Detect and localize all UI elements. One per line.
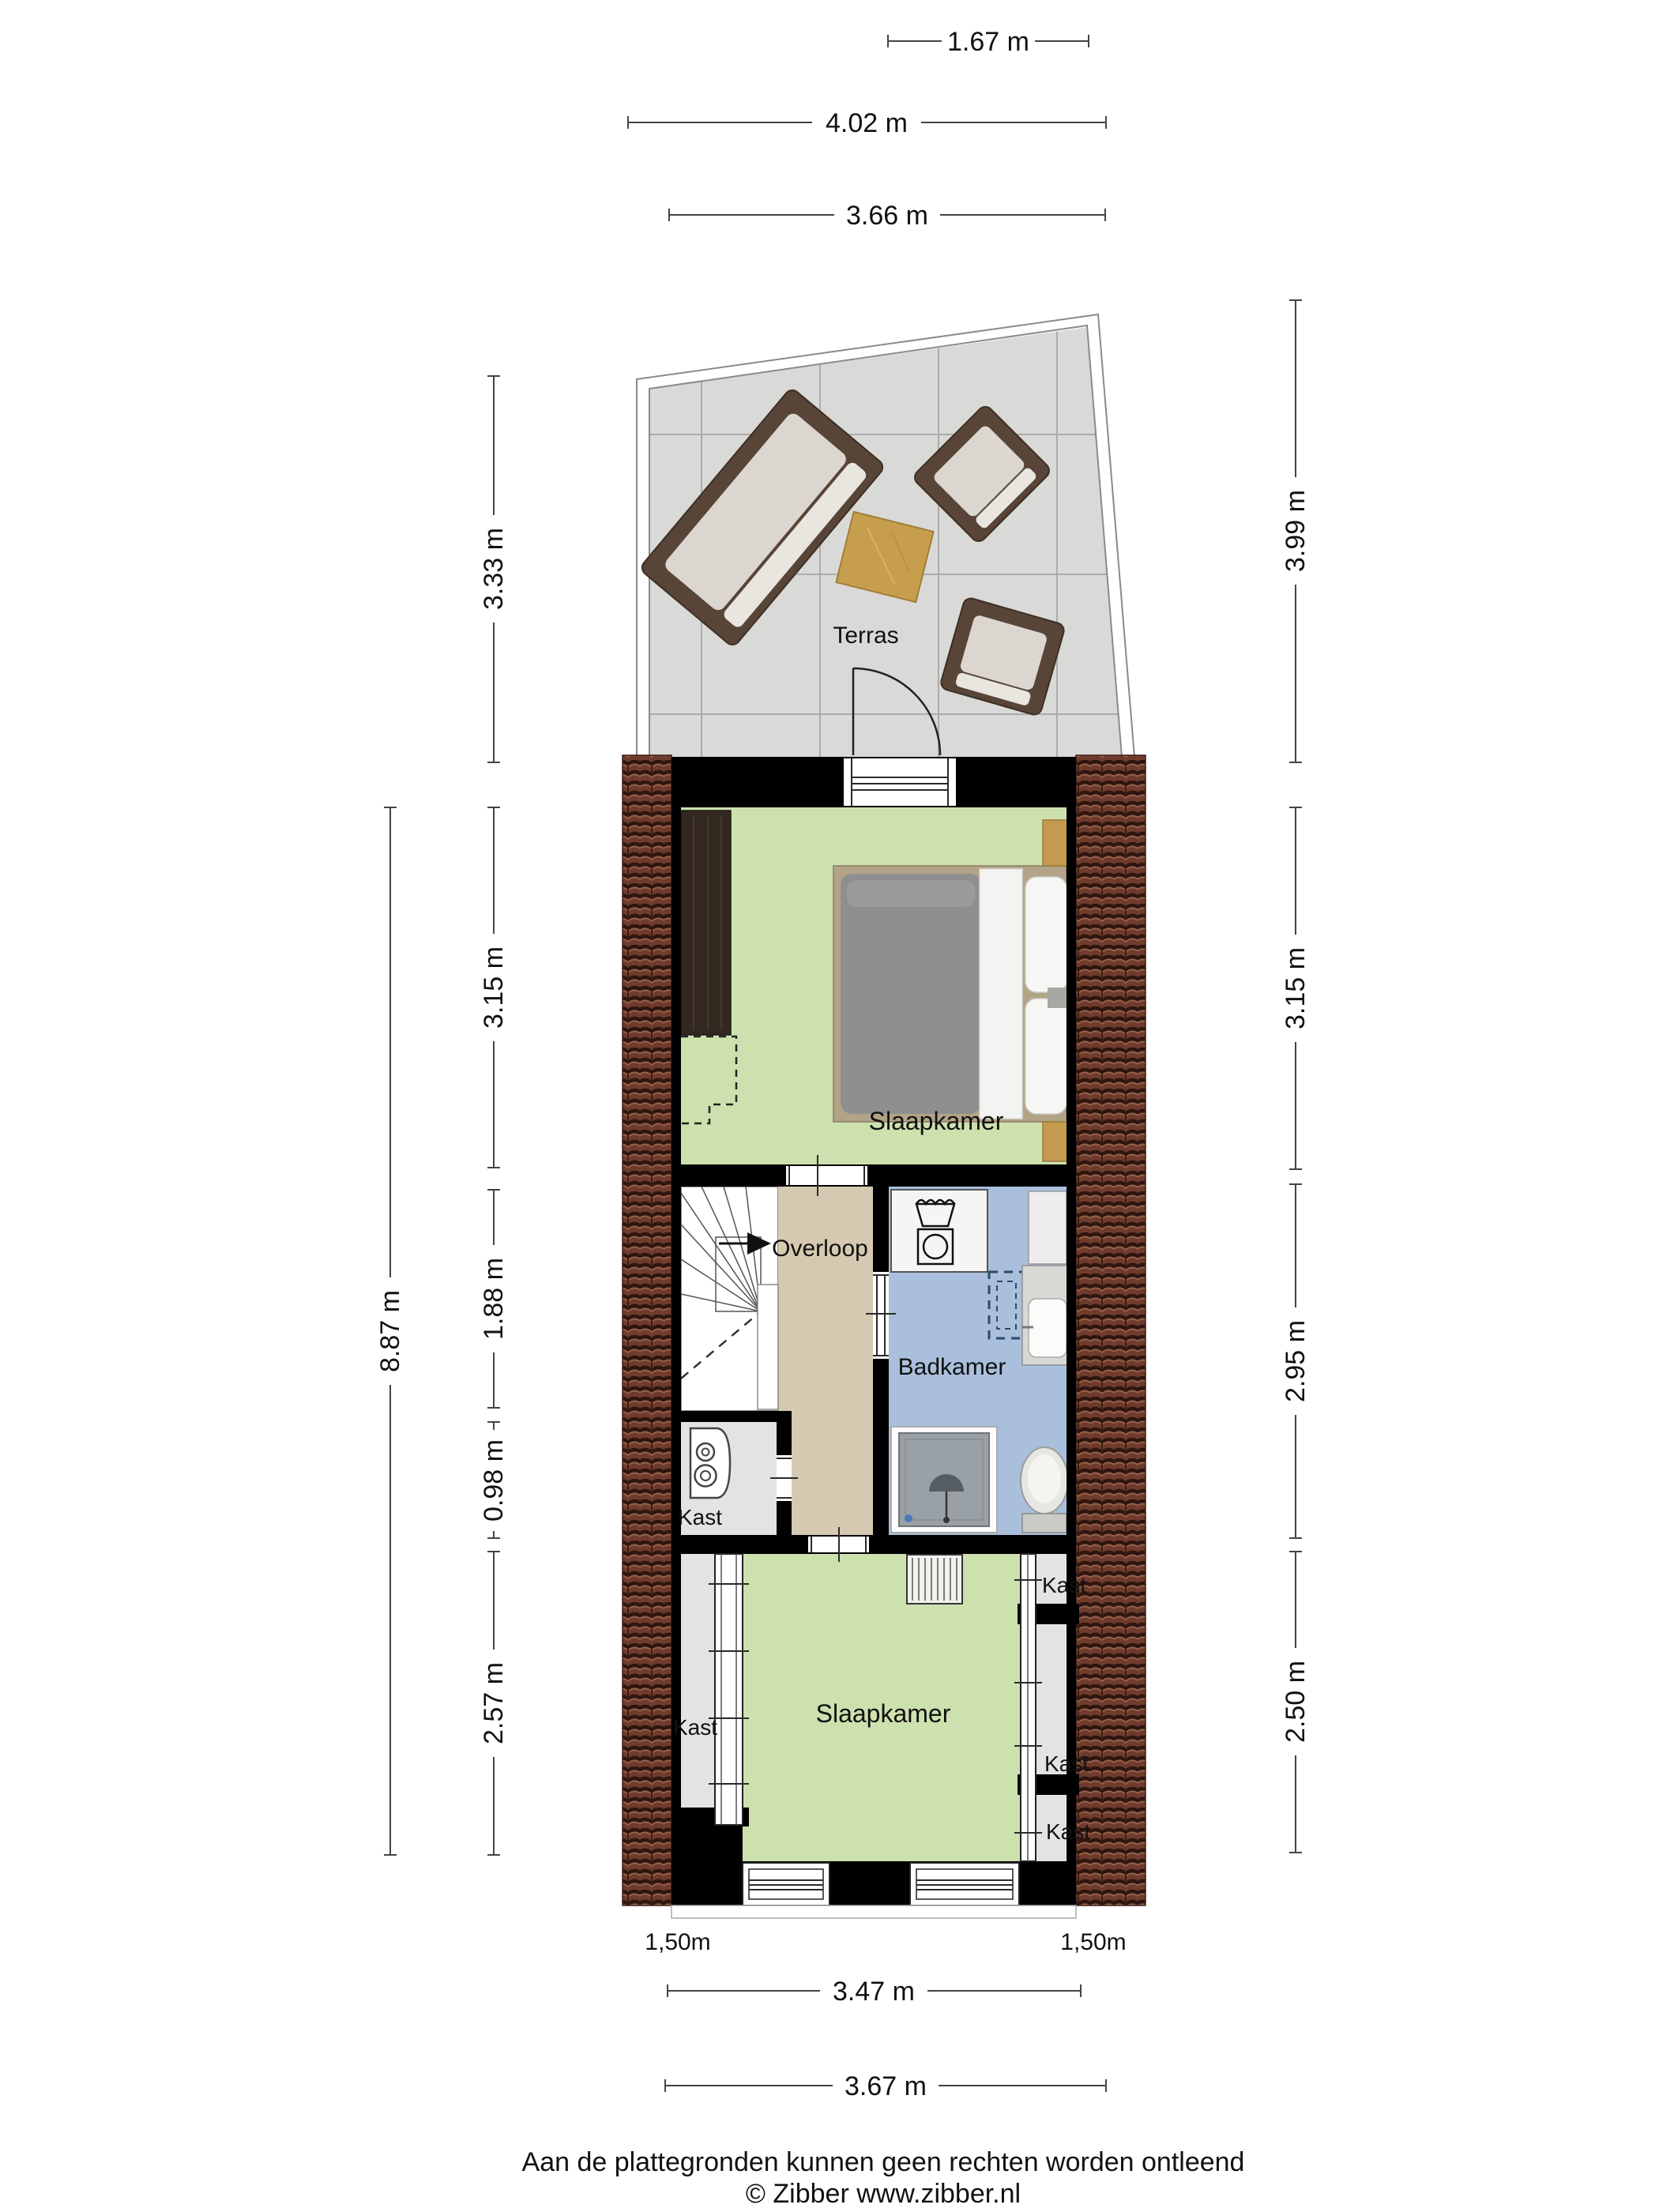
dim-left-257: 2.57 m — [479, 1552, 509, 1855]
dim-left-188: 1.88 m — [479, 1190, 509, 1408]
svg-text:2.50 m: 2.50 m — [1281, 1661, 1311, 1743]
svg-text:3.66 m: 3.66 m — [846, 201, 928, 231]
window-bottom-left — [743, 1863, 829, 1905]
dim-right-399: 3.99 m — [1281, 300, 1311, 762]
svg-text:3.15 m: 3.15 m — [1281, 947, 1311, 1029]
svg-text:4.02 m: 4.02 m — [826, 108, 908, 138]
room-label-kast-links: Kast — [673, 1715, 717, 1740]
room-label-slaapkamer-boven: Slaapkamer — [869, 1107, 1004, 1135]
roof-band-left — [623, 755, 671, 1905]
svg-text:2.57 m: 2.57 m — [479, 1662, 509, 1744]
dim-right-315: 3.15 m — [1281, 807, 1311, 1169]
footer-disclaimer: Aan de plattegronden kunnen geen rechten… — [522, 2147, 1245, 2177]
stair-balustrade — [758, 1285, 778, 1409]
room-label-badkamer: Badkamer — [898, 1354, 1006, 1380]
knee-height-left: 1,50m — [645, 1929, 710, 1955]
svg-text:0.98 m: 0.98 m — [479, 1439, 509, 1522]
dim-bottom-347: 3.47 m — [668, 1977, 1081, 2007]
nightstand-top — [1043, 820, 1068, 866]
svg-text:1.88 m: 1.88 m — [479, 1258, 509, 1340]
dim-top-3: 3.66 m — [669, 201, 1105, 231]
terras-area: Terras — [637, 314, 1138, 757]
svg-text:3.33 m: 3.33 m — [479, 528, 509, 610]
svg-text:8.87 m: 8.87 m — [375, 1290, 405, 1372]
floorplan-canvas: Terras — [0, 0, 1659, 2212]
knee-wall-left — [709, 1554, 749, 1825]
footer-copyright: © Zibber www.zibber.nl — [746, 2179, 1021, 2209]
room-label-kast-rechts-boven: Kast — [1042, 1573, 1086, 1597]
vanity-sink — [1022, 1266, 1071, 1365]
svg-text:3.99 m: 3.99 m — [1281, 490, 1311, 572]
roof-band-right — [1076, 755, 1145, 1905]
dim-top-2: 4.02 m — [628, 108, 1106, 138]
window-bottom-right — [910, 1863, 1019, 1905]
dim-right-295: 2.95 m — [1281, 1184, 1311, 1538]
svg-text:3.47 m: 3.47 m — [833, 1977, 915, 2007]
room-label-slaapkamer-onder: Slaapkamer — [816, 1699, 951, 1728]
window-sill-strip — [671, 1905, 1076, 1918]
boiler — [690, 1428, 730, 1498]
svg-text:3.15 m: 3.15 m — [479, 946, 509, 1029]
svg-text:2.95 m: 2.95 m — [1281, 1320, 1311, 1402]
dim-left-098: 0.98 m — [479, 1422, 509, 1538]
terrace-door-opening — [844, 758, 956, 806]
dim-right-250: 2.50 m — [1281, 1552, 1311, 1853]
double-bed — [833, 866, 1066, 1122]
floorplan-page: Terras — [0, 0, 1659, 2212]
bathroom-cabinet — [1029, 1191, 1066, 1264]
room-label-kast-rechts-midden: Kast — [1044, 1751, 1089, 1776]
washing-machine — [891, 1190, 987, 1272]
svg-text:1.67 m: 1.67 m — [947, 27, 1029, 57]
closet-right-floor — [1036, 1554, 1066, 1861]
room-label-terras: Terras — [833, 623, 898, 649]
dim-left-887: 8.87 m — [375, 807, 405, 1855]
toilet — [1021, 1447, 1068, 1533]
knee-height-right: 1,50m — [1060, 1929, 1126, 1955]
room-label-kast-rechts-onder: Kast — [1046, 1819, 1090, 1844]
dim-bottom-367: 3.67 m — [665, 2071, 1106, 2101]
nightstand-bottom — [1043, 1122, 1068, 1161]
dim-top-1: 1.67 m — [888, 27, 1089, 57]
svg-text:3.67 m: 3.67 m — [845, 2071, 927, 2101]
dim-left-333: 3.33 m — [479, 376, 509, 762]
room-label-kast-cv: Kast — [678, 1505, 722, 1529]
wardrobe — [681, 811, 731, 1035]
dim-left-315: 3.15 m — [479, 807, 509, 1168]
room-label-overloop: Overloop — [772, 1236, 868, 1262]
shower — [891, 1427, 997, 1533]
radiator — [907, 1555, 962, 1604]
